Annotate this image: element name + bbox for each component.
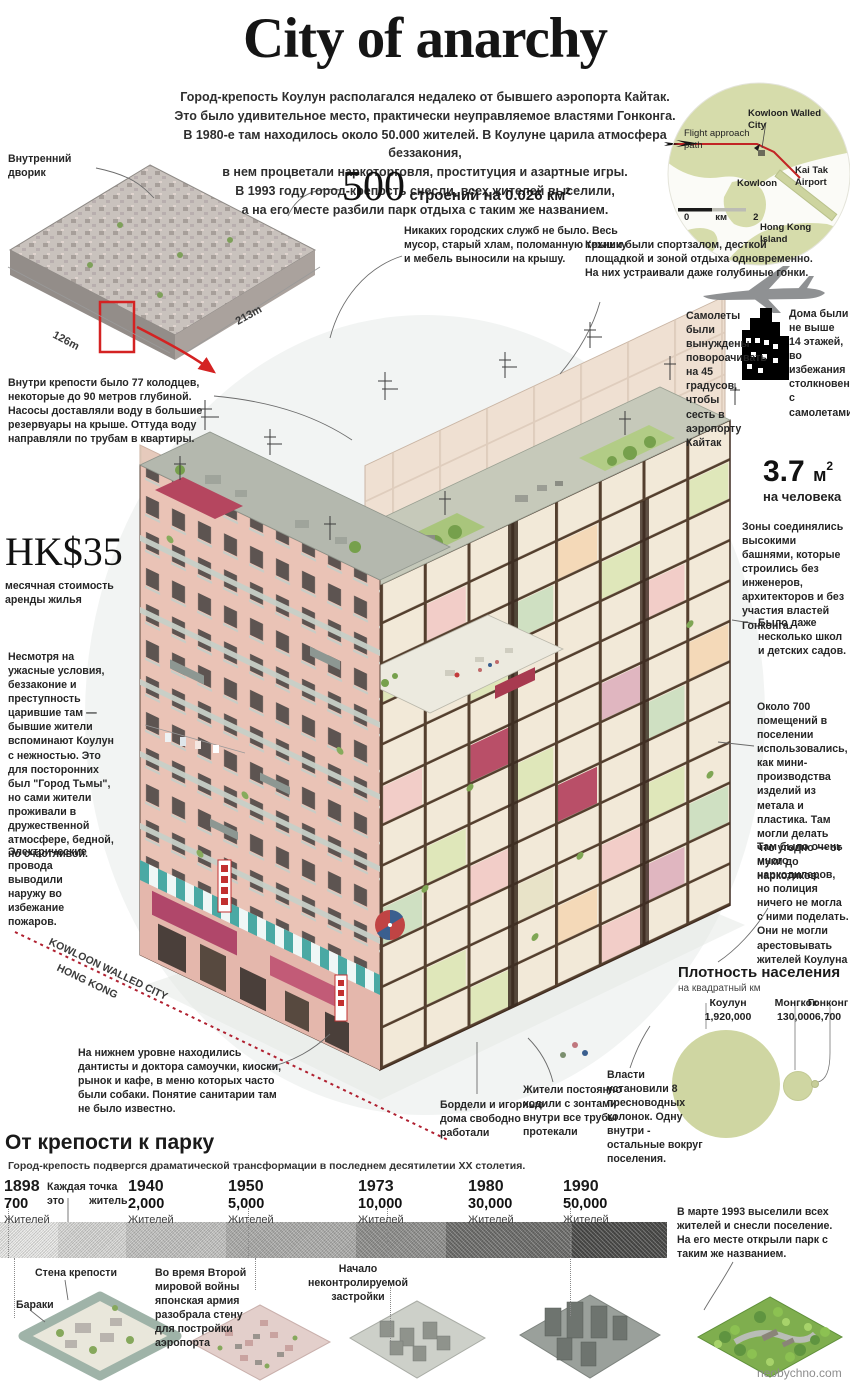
timeline-entry-1950: 1950 5,000 Жителей (228, 1178, 274, 1226)
stat-area: 3.7 м2 на человека (763, 455, 841, 504)
timeline-legend: Каждая точка это житель (47, 1180, 139, 1208)
intro-line: Это было удивительное место, практически… (165, 107, 685, 126)
annotation-courtyard: Внутренний дворик (8, 152, 100, 180)
stat-rent-caption: месячная стоимость аренды жилья (5, 579, 135, 607)
timeline-entry-1898: 1898 700 Жителей (4, 1178, 50, 1226)
density-label-hongkong: Гонконг6,700 (806, 996, 850, 1024)
annotation-schools: Было даже несколько школ и детских садов… (758, 616, 848, 658)
scale-max: 2 (753, 212, 758, 224)
intro-line: В 1980-е там находилось около 50.000 жит… (165, 126, 685, 164)
timeline-entry-1940: 1940 2,000 Жителей (128, 1178, 174, 1226)
map-scale-bar (678, 208, 746, 212)
annotation-wells: Внутри крепости было 77 колодцев, некото… (8, 376, 228, 446)
stat-buildings-number: 500 (342, 164, 405, 210)
annotation-planes: Самолеты были вынуждены повороачивать на… (686, 309, 750, 450)
stat-rent: HK$35 месячная стоимость аренды жилья (5, 528, 135, 607)
map-city-label: Kowloon Walled City (748, 108, 828, 132)
timeline-connector (14, 1258, 15, 1318)
stage-label-ww2: Во время Второй мировой войны японская а… (155, 1266, 260, 1350)
intro-line: Город-крепость Коулун располагался недал… (165, 88, 685, 107)
dimension-width: 126m (51, 329, 82, 353)
density-label-kowloon: Коулун1,920,000 (686, 996, 770, 1024)
timeline-header: От крепости к парку (5, 1131, 214, 1155)
stage-illustration-sprawl (345, 1296, 490, 1384)
bubble-mongkok (784, 1072, 813, 1101)
stage-illustration-dense (515, 1290, 665, 1385)
infographic-poster: 126m 213m 0 км 2 Flight approach pa (0, 0, 850, 1385)
stat-rent-number: HK$35 (5, 528, 135, 575)
density-title: Плотность населения (678, 964, 840, 981)
page-title: City of anarchy (0, 6, 850, 71)
annotation-pumps: Власти установили 8 пресноводных колонок… (607, 1068, 707, 1167)
annotation-houses: Дома были не выше 14 этажей, во избежани… (789, 307, 849, 420)
annotation-wires: Электрические провода выводили наружу во… (8, 845, 96, 929)
stairwell-shaft (640, 498, 649, 947)
map-kowloon-label: Kowloon (737, 178, 797, 190)
stage-label-wall: Стена крепости (35, 1266, 155, 1280)
watermark: neobychno.com (757, 1366, 842, 1380)
stat-area-caption: на человека (763, 489, 841, 504)
annotation-ground: На нижнем уровне находились дантисты и д… (78, 1046, 290, 1116)
stat-buildings-caption: строений на 0.026 км2 (409, 187, 570, 204)
hanging-sign (335, 975, 347, 1021)
umbrella-icon (375, 910, 405, 940)
population-dot-strip (0, 1222, 667, 1258)
density-subtitle: на квадратный км (678, 983, 761, 994)
annotation-despite: Несмотря на ужасные условия, беззаконие … (8, 650, 120, 861)
bubble-hongkong (812, 1081, 819, 1088)
map-airport-label: Kai Tak Airport (795, 165, 845, 189)
stat-area-number: 3.7 м2 (763, 455, 841, 489)
timeline-entry-1973: 1973 10,000 Жителей (358, 1178, 404, 1226)
timeline-subheader: Город-крепость подвергся драматической т… (8, 1160, 608, 1172)
walled-city-marker (758, 150, 765, 156)
annotation-1993: В марте 1993 выселили всех жителей и сне… (677, 1205, 835, 1261)
timeline-entry-1990: 1990 50,000 Жителей (563, 1178, 609, 1226)
stage-label-uncontrolled: Начало неконтролируемой застройки (298, 1262, 418, 1304)
stat-buildings: 500 строений на 0.026 км2 (342, 163, 570, 211)
scale-unit: км (715, 212, 727, 224)
annotation-dealers: Там было очень много наркодилеров, но по… (757, 840, 849, 967)
stairwell-shaft (508, 520, 518, 1010)
map-flight-label: Flight approach path (684, 128, 754, 152)
stage-label-barracks: Бараки (16, 1298, 86, 1312)
hanging-sign (218, 860, 231, 912)
timeline-entry-1980: 1980 30,000 Жителей (468, 1178, 514, 1226)
annotation-roofs: Крыши были спортзалом, десткой площадкой… (585, 238, 815, 280)
